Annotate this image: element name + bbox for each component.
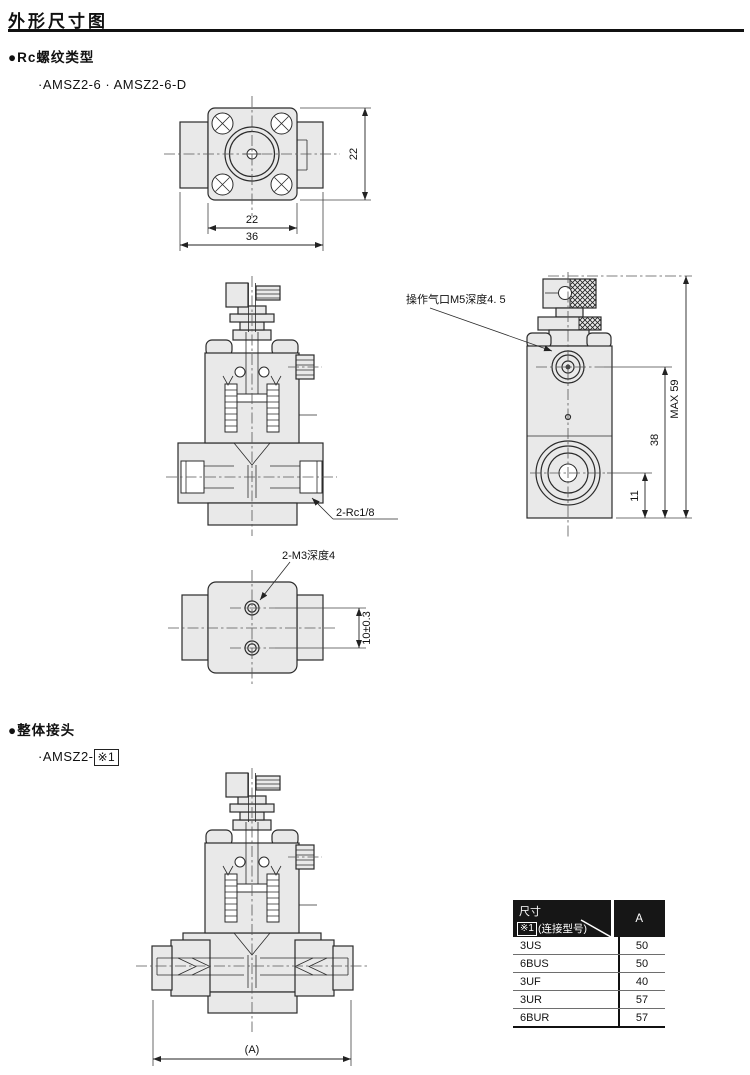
table-header-col-a: A (614, 900, 666, 937)
port-size-label: 2-Rc1/8 (336, 507, 375, 519)
m3-thread-label: 2-M3深度4 (282, 548, 335, 562)
bottom-view-drawing: 10±0.3 2-M3深度4 (168, 548, 373, 687)
knob-pin-hole (559, 287, 572, 300)
dim-label-a: (A) (245, 1044, 260, 1056)
a-value-cell: 50 (620, 940, 664, 952)
dim-label-38: 38 (649, 434, 661, 446)
hex-end-left (180, 122, 208, 188)
body-bottom-face (208, 582, 297, 673)
dim-label-width-36: 36 (246, 231, 258, 243)
dimension-table: 尺寸 ※1 (连接型号) A 3US 50 6BUS 50 3UF 40 3 (513, 900, 665, 1028)
base-foot (208, 992, 297, 1013)
table-row: 6BUS 50 (513, 955, 665, 973)
table-row: 6BUR 57 (513, 1009, 665, 1028)
a-value-cell: 57 (620, 994, 664, 1006)
model-cell: 3UR (513, 991, 620, 1008)
model-cell: 6BUR (513, 1009, 620, 1026)
hex-end-right (297, 122, 323, 188)
hex-end-left (182, 595, 208, 660)
model-cell: 6BUS (513, 955, 620, 972)
pilot-port-label: 操作气口M5深度4. 5 (406, 292, 506, 306)
table-header: 尺寸 ※1 (连接型号) A (513, 900, 665, 937)
dim-label-11: 11 (629, 490, 641, 501)
model-cell: 3UF (513, 973, 620, 990)
valve-body-side (527, 346, 612, 518)
model-cell: 3US (513, 937, 620, 954)
fitting-nut-right (295, 940, 334, 996)
dim-label-10-03: 10±0.3 (361, 611, 373, 645)
fitting-nut-left (171, 940, 210, 996)
base-foot (208, 503, 297, 525)
table-row: 3UF 40 (513, 973, 665, 991)
catalog-page: 外形尺寸图 ●Rc螺纹类型 ·AMSZ2-6 · AMSZ2-6-D ●整体接头… (0, 0, 750, 1075)
dim-label-height-22: 22 (348, 148, 360, 160)
table-row: 3UR 57 (513, 991, 665, 1009)
header-diagonal (513, 900, 611, 937)
dim-label-max-59: MAX 59 (669, 379, 681, 418)
a-value-cell: 50 (620, 958, 664, 970)
hex-end-right (297, 595, 323, 660)
a-value-cell: 40 (620, 976, 664, 988)
table-row: 3US 50 (513, 937, 665, 955)
front-section-drawing: 2-Rc1/8 (166, 276, 398, 536)
side-view-drawing: 11 38 MAX 59 操作气口M5深度4. 5 (406, 272, 692, 537)
top-view-drawing: 22 22 36 (164, 96, 371, 251)
knurl-crosshatch (570, 279, 596, 308)
dim-label-square-22: 22 (246, 214, 258, 226)
fitting-section-drawing: (A) (136, 768, 368, 1066)
a-value-cell: 57 (620, 1012, 664, 1024)
